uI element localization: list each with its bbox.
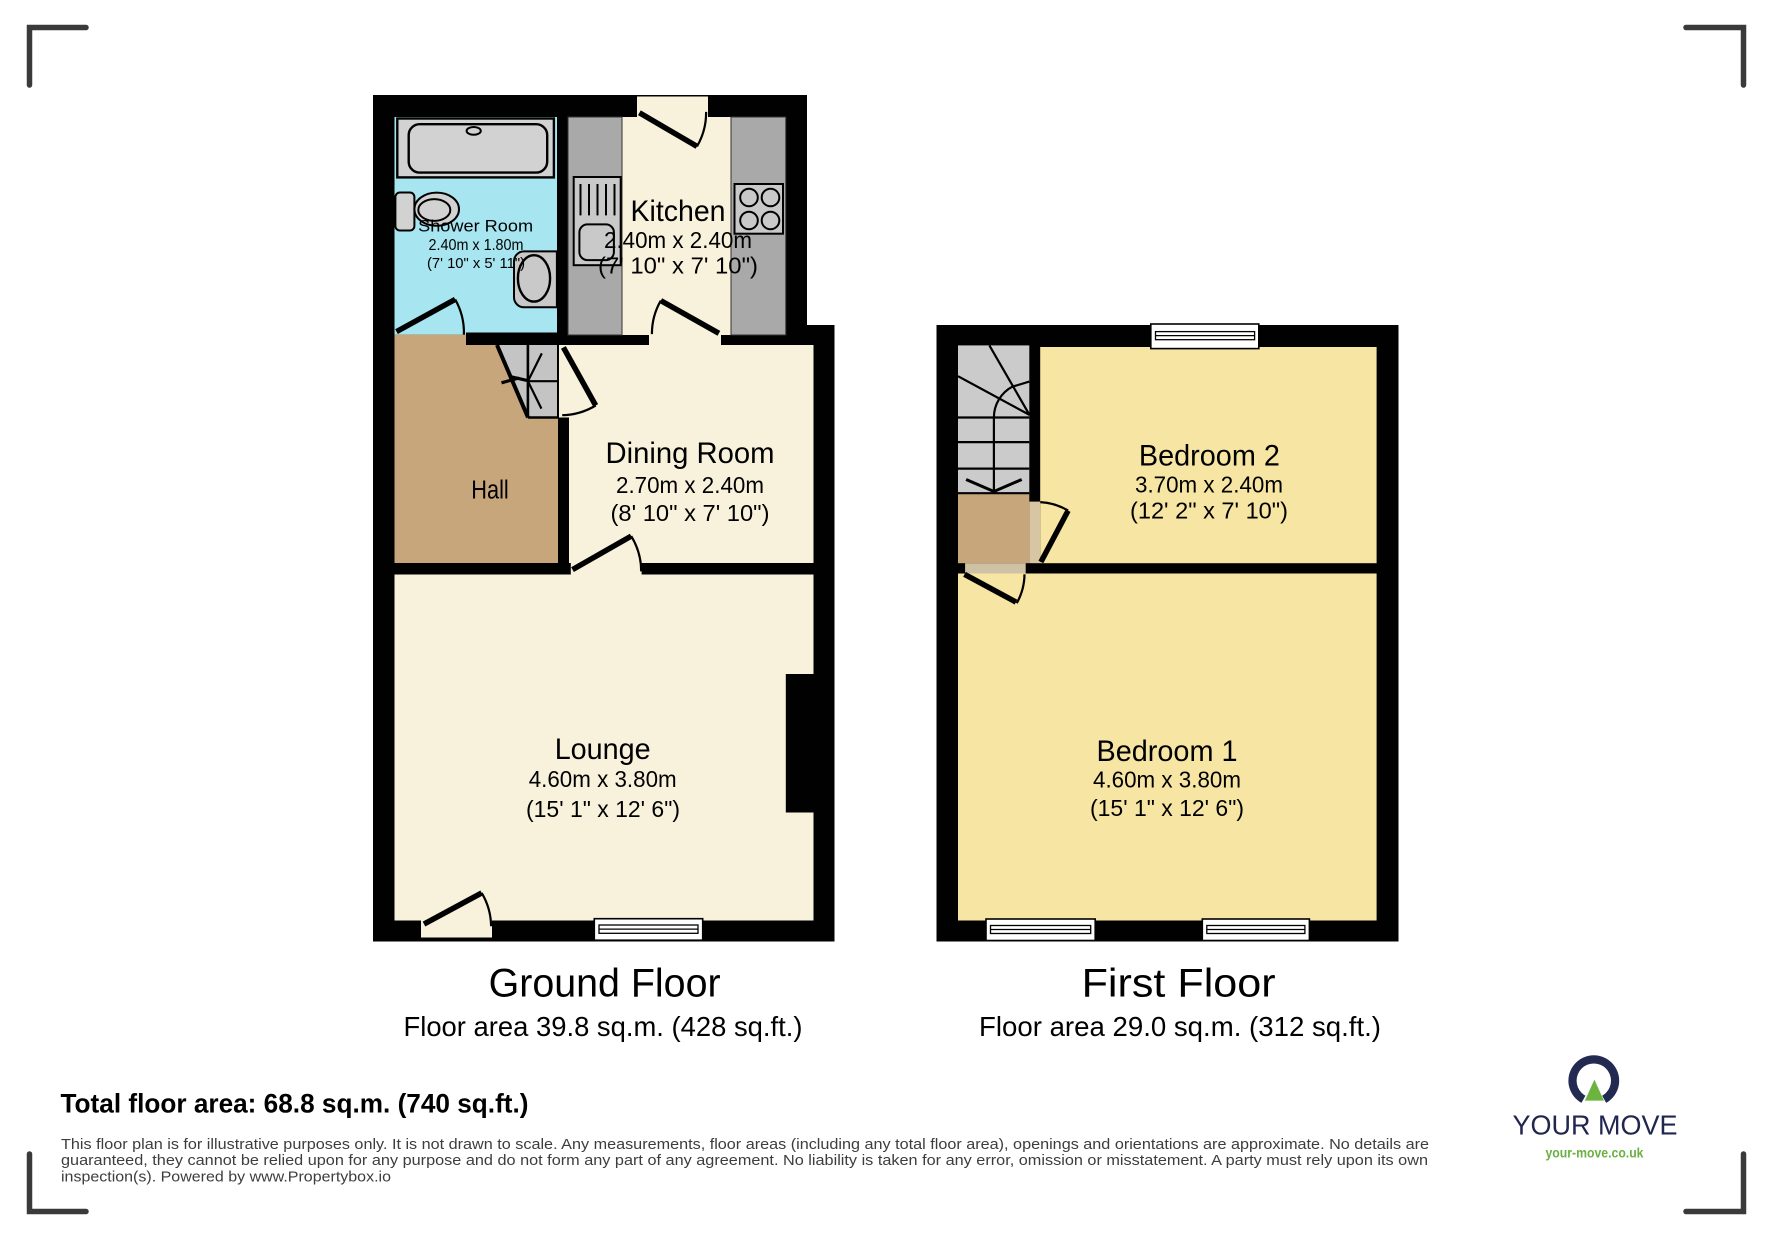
svg-text:4.60m x 3.80m: 4.60m x 3.80m (529, 766, 677, 792)
svg-text:(8' 10" x 7' 10"): (8' 10" x 7' 10") (611, 500, 770, 526)
svg-text:2.40m x 1.80m: 2.40m x 1.80m (429, 237, 524, 254)
svg-text:First Floor: First Floor (1082, 962, 1276, 1006)
svg-text:Dining Room: Dining Room (606, 437, 775, 470)
svg-text:Kitchen: Kitchen (631, 195, 726, 228)
svg-text:3.70m x 2.40m: 3.70m x 2.40m (1135, 471, 1283, 497)
svg-text:This floor plan is for illustr: This floor plan is for illustrative purp… (61, 1137, 1429, 1153)
svg-text:Hall: Hall (471, 477, 509, 505)
svg-text:Floor area 39.8 sq.m. (428 sq.: Floor area 39.8 sq.m. (428 sq.ft.) (404, 1011, 803, 1042)
svg-text:4.60m x 3.80m: 4.60m x 3.80m (1093, 767, 1241, 793)
svg-text:(7' 10" x 5' 11"): (7' 10" x 5' 11") (427, 255, 525, 272)
svg-text:Bedroom 2: Bedroom 2 (1139, 439, 1280, 472)
svg-text:inspection(s). Powered by www.: inspection(s). Powered by www.Propertybo… (61, 1170, 391, 1186)
svg-text:(12' 2" x 7' 10"): (12' 2" x 7' 10") (1130, 498, 1288, 524)
svg-text:Bedroom 1: Bedroom 1 (1097, 735, 1238, 768)
svg-text:guaranteed, they cannot be rel: guaranteed, they cannot be relied upon f… (61, 1153, 1428, 1169)
svg-text:2.40m x 2.40m: 2.40m x 2.40m (604, 227, 752, 253)
svg-text:Shower Room: Shower Room (418, 218, 533, 236)
svg-text:(7' 10" x 7' 10"): (7' 10" x 7' 10") (598, 253, 758, 279)
svg-text:2.70m x 2.40m: 2.70m x 2.40m (616, 472, 764, 498)
svg-text:Total floor area: 68.8 sq.m. (: Total floor area: 68.8 sq.m. (740 sq.ft.… (61, 1089, 529, 1119)
svg-text:Lounge: Lounge (555, 733, 651, 766)
svg-text:(15' 1" x 12' 6"): (15' 1" x 12' 6") (526, 796, 680, 822)
svg-text:Ground Floor: Ground Floor (489, 962, 721, 1006)
svg-text:(15' 1" x 12' 6"): (15' 1" x 12' 6") (1090, 795, 1244, 821)
svg-text:Floor area 29.0 sq.m. (312 sq.: Floor area 29.0 sq.m. (312 sq.ft.) (979, 1011, 1381, 1042)
svg-text:YOUR MOVE: YOUR MOVE (1513, 1110, 1678, 1141)
svg-text:your-move.co.uk: your-move.co.uk (1546, 1145, 1644, 1161)
